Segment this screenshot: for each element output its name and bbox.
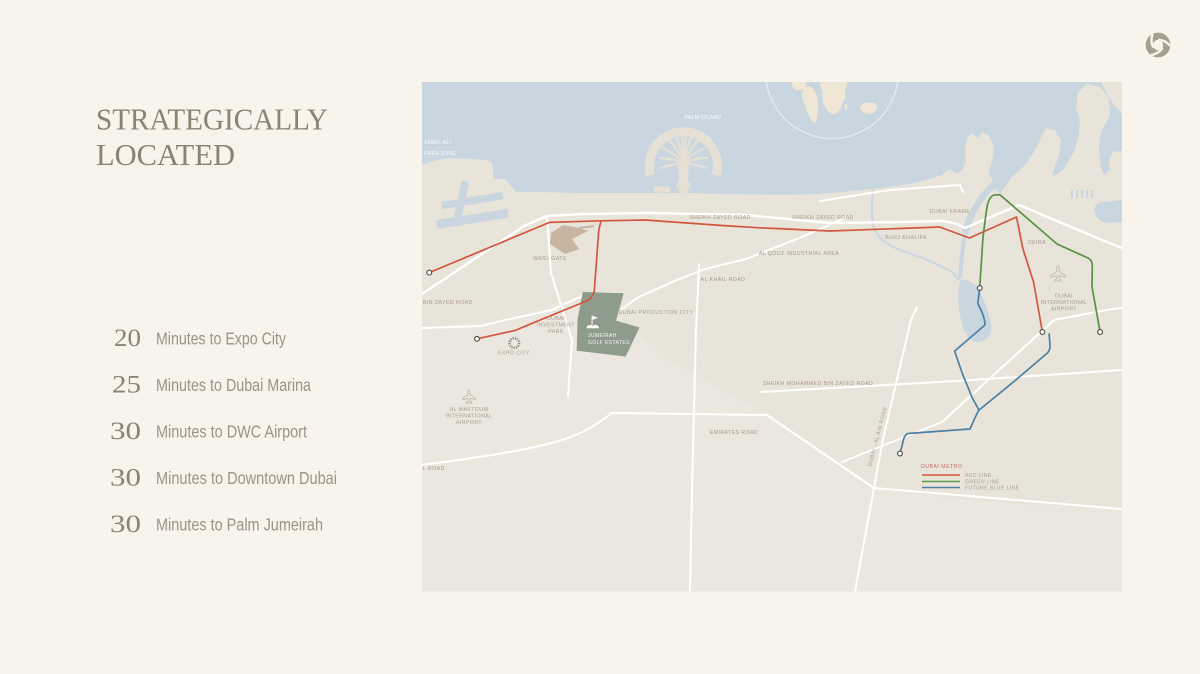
svg-text:20: 20 [114, 323, 141, 352]
svg-text:25: 25 [112, 369, 141, 398]
svg-text:DUBAI: DUBAI [1055, 294, 1073, 300]
svg-text:Minutes to Expo City: Minutes to Expo City [156, 329, 286, 349]
svg-text:AIRPORT: AIRPORT [1051, 307, 1077, 313]
svg-text:FREE ZONE: FREE ZONE [424, 151, 456, 157]
svg-text:WASL GATE: WASL GATE [533, 256, 567, 262]
svg-text:INTERNATIONAL: INTERNATIONAL [1041, 300, 1088, 306]
svg-text:INVESTMENT: INVESTMENT [537, 323, 575, 329]
svg-text:JABEL ALI: JABEL ALI [424, 140, 451, 146]
svg-text:Minutes to Dubai Marina: Minutes to Dubai Marina [156, 375, 311, 395]
svg-text:Minutes to Downtown Dubai: Minutes to Downtown Dubai [156, 468, 337, 488]
svg-text:30: 30 [110, 509, 141, 538]
svg-text:Minutes to DWC Airport: Minutes to DWC Airport [156, 422, 307, 442]
svg-text:SHEIKH ZAYED ROAD: SHEIKH ZAYED ROAD [689, 215, 751, 221]
svg-text:PALM ISLAND: PALM ISLAND [684, 115, 721, 121]
svg-text:SHEIKH ZAYED ROAD: SHEIKH ZAYED ROAD [792, 215, 854, 221]
svg-text:INTERNATIONAL: INTERNATIONAL [446, 414, 493, 420]
svg-text:30: 30 [110, 462, 141, 491]
svg-text:AL QOUZ INDUSTRIAL AREA: AL QOUZ INDUSTRIAL AREA [759, 251, 839, 257]
svg-text:AL MAKTOUM: AL MAKTOUM [450, 407, 489, 413]
svg-text:FUTURE BLUE LINE: FUTURE BLUE LINE [965, 486, 1020, 492]
svg-text:DUBAI PRODUCTION CITY: DUBAI PRODUCTION CITY [619, 310, 694, 316]
svg-text:PARK: PARK [548, 329, 564, 335]
svg-text:STRATEGICALLY: STRATEGICALLY [96, 102, 328, 137]
svg-text:SHEIKH MOHAMMED BIN ZAYED ROAD: SHEIKH MOHAMMED BIN ZAYED ROAD [763, 381, 874, 387]
svg-text:LOCATED: LOCATED [96, 137, 235, 172]
svg-text:DUBAI: DUBAI [547, 316, 565, 322]
svg-text:Minutes to Palm Jumeirah: Minutes to Palm Jumeirah [156, 515, 323, 535]
svg-text:30: 30 [110, 416, 141, 445]
svg-text:AIRPORT: AIRPORT [456, 420, 482, 426]
svg-text:EMIRATES ROAD: EMIRATES ROAD [710, 430, 758, 436]
svg-text:RED LINE: RED LINE [965, 473, 992, 479]
svg-text:DEIRA: DEIRA [1028, 240, 1046, 246]
svg-text:DUBAI METRO: DUBAI METRO [921, 464, 963, 470]
svg-text:BURJ KHALIFA: BURJ KHALIFA [885, 235, 927, 241]
svg-text:AL KHAIL ROAD: AL KHAIL ROAD [701, 277, 746, 283]
svg-text:EXPO CITY: EXPO CITY [498, 351, 530, 357]
svg-text:GOLF ESTATES: GOLF ESTATES [588, 340, 630, 346]
svg-text:L ROAD: L ROAD [423, 466, 445, 472]
svg-text:BIN ZAYED ROAD: BIN ZAYED ROAD [423, 300, 473, 306]
svg-text:JUMEIRAH: JUMEIRAH [588, 333, 617, 339]
svg-text:DUBAI FRAME: DUBAI FRAME [930, 209, 970, 215]
